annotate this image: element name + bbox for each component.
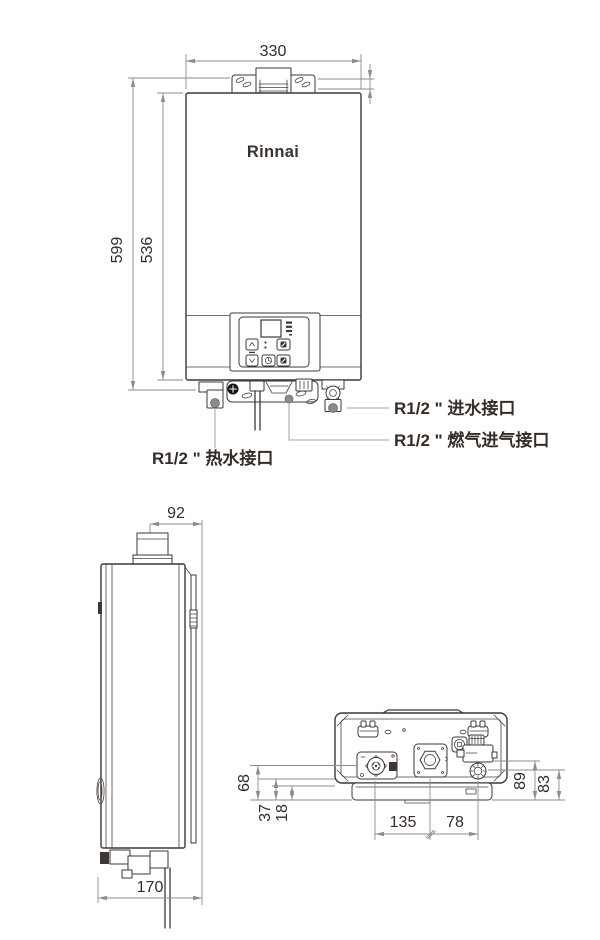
dim-depth-170: 170 [98,877,202,903]
label-gas-inlet: R1/2 " 燃气进气接口 [394,430,549,450]
rail-bracket [190,610,197,628]
mode-button [277,339,290,350]
bottom-fittings-front [199,379,344,430]
dim-599-text: 599 [109,237,126,264]
dim-135-78: 135 78 [375,814,478,839]
dim-92-text: 92 [167,505,185,522]
dim-170-text: 170 [137,879,164,896]
bottom-lip [352,783,492,803]
connection-leaders [215,403,389,448]
bottom-view: 68 37 18 89 83 135 78 [236,710,565,840]
dim-135-text: 135 [390,814,417,831]
hot-water-valve [357,752,397,779]
dim-78-text: 78 [446,814,464,831]
dim-83: 83 [536,770,559,800]
dim-83-text: 83 [536,775,553,793]
brand-logo: Rinnai [247,143,299,161]
flue-pipe-side [133,533,172,564]
down-button [246,355,258,366]
priority-button [277,355,290,366]
label-hot-water: R1/2 " 热水接口 [152,448,273,468]
dim-height-536: 536 [139,93,183,380]
side-clip [98,602,102,614]
water-inlet-connection [322,380,344,413]
hot-water-connection [199,382,223,408]
dim-68-text: 68 [236,774,253,792]
valve-stop [389,762,397,771]
drain-knob [228,384,239,395]
dim-536-text: 536 [139,237,156,264]
gas-fitting [414,744,448,777]
technical-drawing: 330 599 536 10 [0,0,600,940]
lcd-display [261,320,281,337]
front-view: 330 599 536 10 [109,43,549,468]
dim-18-text: 18 [274,804,291,822]
dim-89-text: 89 [512,772,529,790]
flue-collar [256,68,291,95]
dim-68: 68 [236,766,258,801]
drawing-canvas: 330 599 536 10 [0,0,600,940]
dim-37-text: 37 [257,804,274,822]
dim-18: 18 [274,786,292,822]
label-water-inlet: R1/2 " 进水接口 [394,398,515,418]
dim-330-text: 330 [260,43,287,60]
side-cabinet [97,564,197,848]
side-view: 92 [97,505,202,928]
dim-89: 89 [512,761,535,800]
control-panel [230,313,320,371]
clock-button [262,355,275,366]
